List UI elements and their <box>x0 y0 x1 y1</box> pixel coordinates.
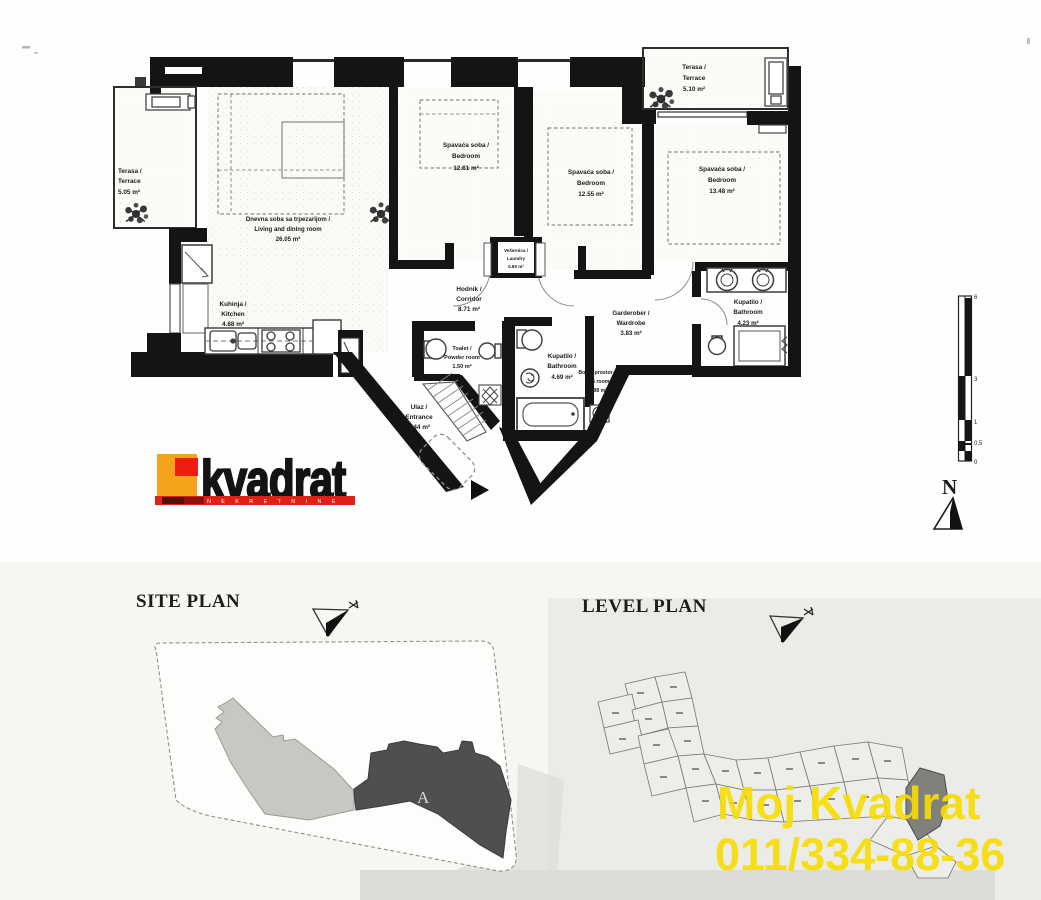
svg-text:3.83 m²: 3.83 m² <box>620 330 641 337</box>
svg-text:Laundry: Laundry <box>507 256 526 261</box>
svg-text:0.5: 0.5 <box>974 441 983 447</box>
svg-text:26.05 m²: 26.05 m² <box>276 236 300 243</box>
svg-text:Spavaća soba /: Spavaća soba / <box>443 142 489 149</box>
svg-text:Terrace: Terrace <box>683 75 706 82</box>
svg-text:Spavaća soba /: Spavaća soba / <box>699 166 745 173</box>
svg-text:8.71 m²: 8.71 m² <box>458 306 480 313</box>
svg-text:Kupatilo /: Kupatilo / <box>734 299 762 306</box>
svg-text:Kupatilo /: Kupatilo / <box>548 353 576 360</box>
svg-text:12.81 m²: 12.81 m² <box>453 165 479 172</box>
svg-text:Dnevna soba sa trpezarijom /: Dnevna soba sa trpezarijom / <box>246 216 331 223</box>
svg-text:011/334-88-36: 011/334-88-36 <box>715 829 1005 880</box>
svg-text:Garderober /: Garderober / <box>612 310 649 317</box>
svg-text:Bedroom: Bedroom <box>577 180 605 187</box>
svg-text:Kitchen: Kitchen <box>221 311 245 318</box>
svg-text:4.88 m²: 4.88 m² <box>222 321 244 328</box>
svg-text:Spavaća soba /: Spavaća soba / <box>568 169 614 176</box>
svg-text:Hodnik /: Hodnik / <box>456 286 481 293</box>
svg-text:13.48 m²: 13.48 m² <box>709 188 735 195</box>
svg-text:Entrance: Entrance <box>405 414 433 421</box>
svg-text:5.05 m²: 5.05 m² <box>118 189 140 196</box>
svg-text:SITE PLAN: SITE PLAN <box>136 591 240 612</box>
svg-text:LEVEL PLAN: LEVEL PLAN <box>582 596 707 617</box>
svg-text:Bathroom: Bathroom <box>733 309 763 316</box>
svg-text:Kuhinja /: Kuhinja / <box>220 301 247 308</box>
svg-text:N: N <box>942 475 957 499</box>
svg-text:Terrace: Terrace <box>118 178 141 185</box>
svg-text:Ulaz /: Ulaz / <box>411 404 428 411</box>
svg-text:Bojler prostor /: Bojler prostor / <box>578 370 616 376</box>
svg-text:Vešernica /: Vešernica / <box>504 248 529 253</box>
svg-text:Moj Kvadrat: Moj Kvadrat <box>717 777 980 829</box>
svg-text:Powder room: Powder room <box>444 355 480 361</box>
svg-text:4.69 m²: 4.69 m² <box>551 374 572 381</box>
svg-text:Living and dining room: Living and dining room <box>254 226 322 233</box>
svg-text:5.10 m²: 5.10 m² <box>683 86 705 93</box>
svg-text:1.50 m²: 1.50 m² <box>452 363 471 370</box>
svg-text:Terasa /: Terasa / <box>682 64 706 71</box>
svg-text:Bathroom: Bathroom <box>547 363 577 370</box>
svg-text:Toalet /: Toalet / <box>452 346 472 352</box>
svg-text:WS room: WS room <box>587 379 610 385</box>
svg-text:Wardrobe: Wardrobe <box>617 320 646 327</box>
svg-text:Terasa /: Terasa / <box>118 168 142 175</box>
svg-text:4.44 m²: 4.44 m² <box>408 424 430 431</box>
svg-text:NEKRETNINE: NEKRETNINE <box>207 499 346 505</box>
svg-text:Bedroom: Bedroom <box>452 153 480 160</box>
svg-text:Bedroom: Bedroom <box>708 177 736 184</box>
svg-text:A: A <box>417 788 430 807</box>
svg-text:12.55 m²: 12.55 m² <box>578 191 604 198</box>
svg-text:0.80 m²: 0.80 m² <box>508 264 524 269</box>
